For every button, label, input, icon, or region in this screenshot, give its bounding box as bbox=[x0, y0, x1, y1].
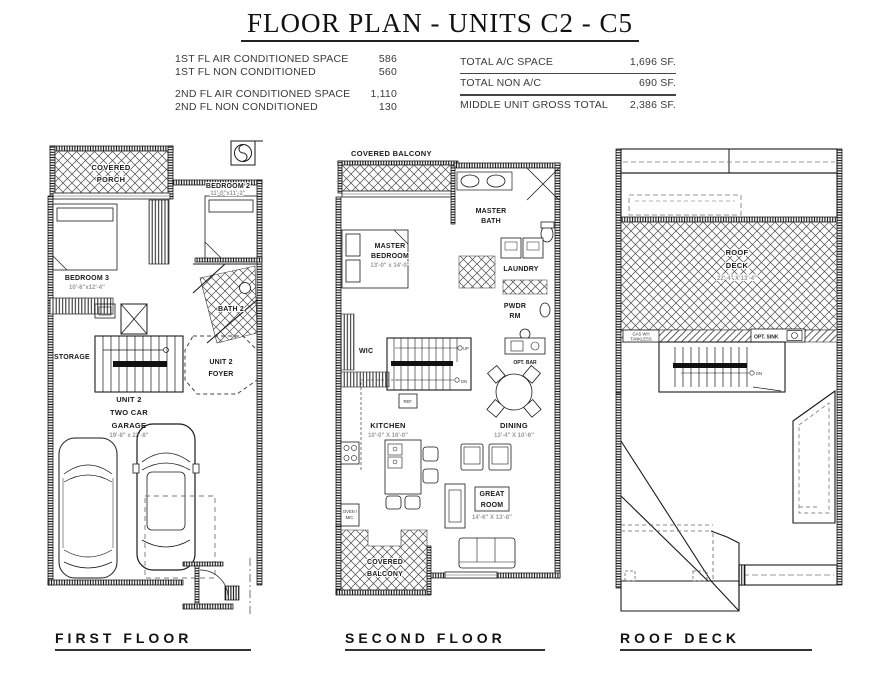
room-label-foyer: UNIT 2 bbox=[209, 359, 232, 366]
stat-value: 2,386 SF. bbox=[630, 99, 676, 112]
powder-room: PWDR RM bbox=[503, 280, 550, 339]
roof-deck-plan: ROOF DECK 22'-4" X 13'-4" GAS WH TANKLES… bbox=[613, 141, 845, 613]
stat-value: 1,696 SF. bbox=[630, 56, 676, 69]
closet bbox=[149, 200, 169, 264]
kitchen: KITCHEN 10'-0" X 16'-0" bbox=[341, 380, 438, 509]
garage-labels: UNIT 2 TWO CAR GARAGE 19'-8" x 22'-8" bbox=[109, 395, 148, 439]
stairs-dn-label: DN bbox=[756, 371, 762, 376]
oven-mic-label: MIC. bbox=[346, 515, 355, 520]
stat-row: TOTAL A/C SPACE1,696 SF. bbox=[460, 53, 676, 74]
stairs-dn-label: DN bbox=[461, 379, 467, 384]
first-floor-plan: COVERED PORCH BEDROOM 2 11'-0"x11'-2" BE… bbox=[45, 138, 265, 623]
stat-label: 2ND FL AIR CONDITIONED SPACE bbox=[175, 88, 371, 101]
room-label-garage: TWO CAR bbox=[110, 408, 148, 417]
oven-mic: OVEN / MIC. bbox=[341, 504, 359, 526]
room-label-kitchen: KITCHEN bbox=[370, 421, 405, 430]
deck-walkway: GAS WH TANKLESS OPT. SINK bbox=[621, 329, 837, 342]
drawing-title: FLOOR PLAN - UNITS C2 - C5 bbox=[241, 8, 639, 42]
opt-bar-label: OPT. BAR bbox=[513, 360, 537, 366]
room-label-covered-porch: PORCH bbox=[97, 175, 126, 184]
great-room: GREAT ROOM 14'-6" X 13'-8" bbox=[445, 484, 515, 568]
stat-row: 2ND FL NON CONDITIONED130 bbox=[175, 101, 397, 114]
opt-bar: OPT. BAR bbox=[505, 338, 545, 366]
bedroom2: BEDROOM 2 11'-0"x11'-2" bbox=[205, 183, 257, 258]
stat-label: 2ND FL NON CONDITIONED bbox=[175, 101, 379, 114]
stat-value: 690 SF. bbox=[639, 77, 676, 90]
stat-row: 1ST FL AIR CONDITIONED SPACE586 bbox=[175, 53, 397, 66]
room-label-covered-balcony: COVERED bbox=[367, 559, 403, 566]
room-label-pwdr: PWDR bbox=[504, 303, 526, 310]
stair-rail bbox=[113, 361, 167, 367]
room-label-master-bath: BATH bbox=[481, 218, 501, 225]
room-label-master-bath: MASTER bbox=[476, 208, 507, 215]
stat-label: 1ST FL NON CONDITIONED bbox=[175, 66, 379, 79]
room-label-garage: UNIT 2 bbox=[116, 395, 142, 404]
room-dims-great-room: 14'-6" X 13'-8" bbox=[472, 515, 512, 521]
unit2-foyer: UNIT 2 FOYER bbox=[185, 336, 257, 394]
master-bedroom: MASTER BEDROOM 13'-0" x 14'-0" bbox=[342, 230, 410, 288]
car-left bbox=[59, 438, 117, 578]
stat-label: TOTAL A/C SPACE bbox=[460, 56, 630, 69]
room-label-storage: STORAGE bbox=[54, 354, 90, 361]
room-label-bedroom2: BEDROOM 2 bbox=[206, 183, 250, 190]
stat-label: TOTAL NON A/C bbox=[460, 77, 639, 90]
stairwell: DN bbox=[659, 342, 785, 392]
entry-stoop bbox=[183, 558, 250, 616]
roof-deck-area: ROOF DECK 22'-4" X 13'-4" bbox=[621, 217, 837, 330]
room-dims-garage: 19'-8" x 22'-8" bbox=[109, 433, 148, 439]
room-label-wic: WIC bbox=[359, 348, 373, 355]
armchairs bbox=[461, 444, 511, 470]
covered-porch: COVERED PORCH bbox=[55, 151, 168, 193]
room-label-foyer: FOYER bbox=[208, 371, 233, 378]
window-band bbox=[445, 572, 497, 578]
room-dims-bedroom2: 11'-0"x11'-2" bbox=[210, 191, 245, 197]
room-label-pwdr: RM bbox=[509, 313, 520, 320]
covered-balcony-bottom: COVERED BALCONY bbox=[336, 526, 431, 595]
parapet bbox=[621, 149, 837, 219]
area-stats-totals: TOTAL A/C SPACE1,696 SF. TOTAL NON A/C69… bbox=[460, 53, 676, 116]
oven-mic-label: OVEN / bbox=[343, 509, 358, 514]
area-stats-left: 1ST FL AIR CONDITIONED SPACE586 1ST FL N… bbox=[175, 53, 397, 114]
stat-value: 130 bbox=[379, 101, 397, 114]
stat-value: 586 bbox=[379, 53, 397, 66]
room-label-great-room: GREAT bbox=[480, 491, 506, 498]
stat-row: MIDDLE UNIT GROSS TOTAL2,386 SF. bbox=[460, 96, 676, 116]
floor-plan-sheet: FLOOR PLAN - UNITS C2 - C5 1ST FL AIR CO… bbox=[0, 0, 880, 680]
stairs: UP DN bbox=[387, 338, 471, 390]
walk-in-closet: WIC bbox=[341, 314, 389, 387]
ref-label: REF. bbox=[403, 399, 412, 404]
section-marker-icon bbox=[231, 141, 263, 165]
room-label-master-bedroom: BEDROOM bbox=[371, 253, 409, 260]
plan-title-first-floor: FIRST FLOOR bbox=[55, 630, 251, 651]
room-label-dining: DINING bbox=[500, 421, 528, 430]
room-label-laundry: LAUNDRY bbox=[503, 266, 538, 273]
master-bath: MASTER BATH bbox=[457, 168, 559, 242]
room-dims-bedroom3: 10'-8"x12'-4" bbox=[69, 285, 105, 291]
room-label-bath2: BATH 2 bbox=[218, 306, 244, 313]
stat-value: 560 bbox=[379, 66, 397, 79]
closet bbox=[50, 298, 113, 314]
stairs bbox=[95, 336, 183, 392]
bath2: BATH 2 bbox=[193, 264, 257, 343]
plan-title-second-floor: SECOND FLOOR bbox=[345, 630, 545, 651]
stat-row: 1ST FL NON CONDITIONED560 bbox=[175, 66, 397, 79]
room-label-master-bedroom: MASTER bbox=[375, 243, 406, 250]
plan-title-roof-deck: ROOF DECK bbox=[620, 630, 812, 651]
room-dims-kitchen: 10'-0" X 16'-0" bbox=[368, 433, 408, 439]
room-dims-master-bedroom: 13'-0" x 14'-0" bbox=[370, 263, 409, 269]
refrigerator: REF. bbox=[399, 394, 417, 408]
gas-wh-label: TANKLESS bbox=[630, 337, 652, 342]
dining: DINING 13'-4" X 10'-6" bbox=[487, 366, 541, 439]
room-label-covered-balcony: BALCONY bbox=[367, 571, 403, 578]
room-dims-roof-deck: 22'-4" X 13'-4" bbox=[717, 276, 757, 282]
lower-roof bbox=[621, 391, 837, 611]
car-right bbox=[133, 424, 199, 570]
room-label-roof-deck: ROOF bbox=[726, 248, 749, 257]
room-label-roof-deck: DECK bbox=[726, 261, 749, 270]
stat-row: 2ND FL AIR CONDITIONED SPACE1,110 bbox=[175, 88, 397, 101]
stat-label: 1ST FL AIR CONDITIONED SPACE bbox=[175, 53, 379, 66]
stat-row: TOTAL NON A/C690 SF. bbox=[460, 74, 676, 96]
second-floor-plan: COVERED BALCONY MASTER BATH bbox=[333, 138, 563, 623]
stat-label: MIDDLE UNIT GROSS TOTAL bbox=[460, 99, 630, 112]
room-label-covered-porch: COVERED bbox=[91, 163, 130, 172]
room-label-covered-balcony-top: COVERED BALCONY bbox=[351, 149, 432, 158]
opt-sink-label: OPT. SINK bbox=[754, 335, 779, 341]
stat-value: 1,110 bbox=[371, 88, 398, 101]
room-dims-dining: 13'-4" X 10'-6" bbox=[494, 433, 534, 439]
bedroom3: BEDROOM 3 10'-8"x12'-4" bbox=[53, 204, 117, 291]
room-label-bedroom3: BEDROOM 3 bbox=[65, 275, 109, 282]
room-label-great-room: ROOM bbox=[481, 502, 504, 509]
stairs-up-label: UP bbox=[463, 346, 469, 351]
